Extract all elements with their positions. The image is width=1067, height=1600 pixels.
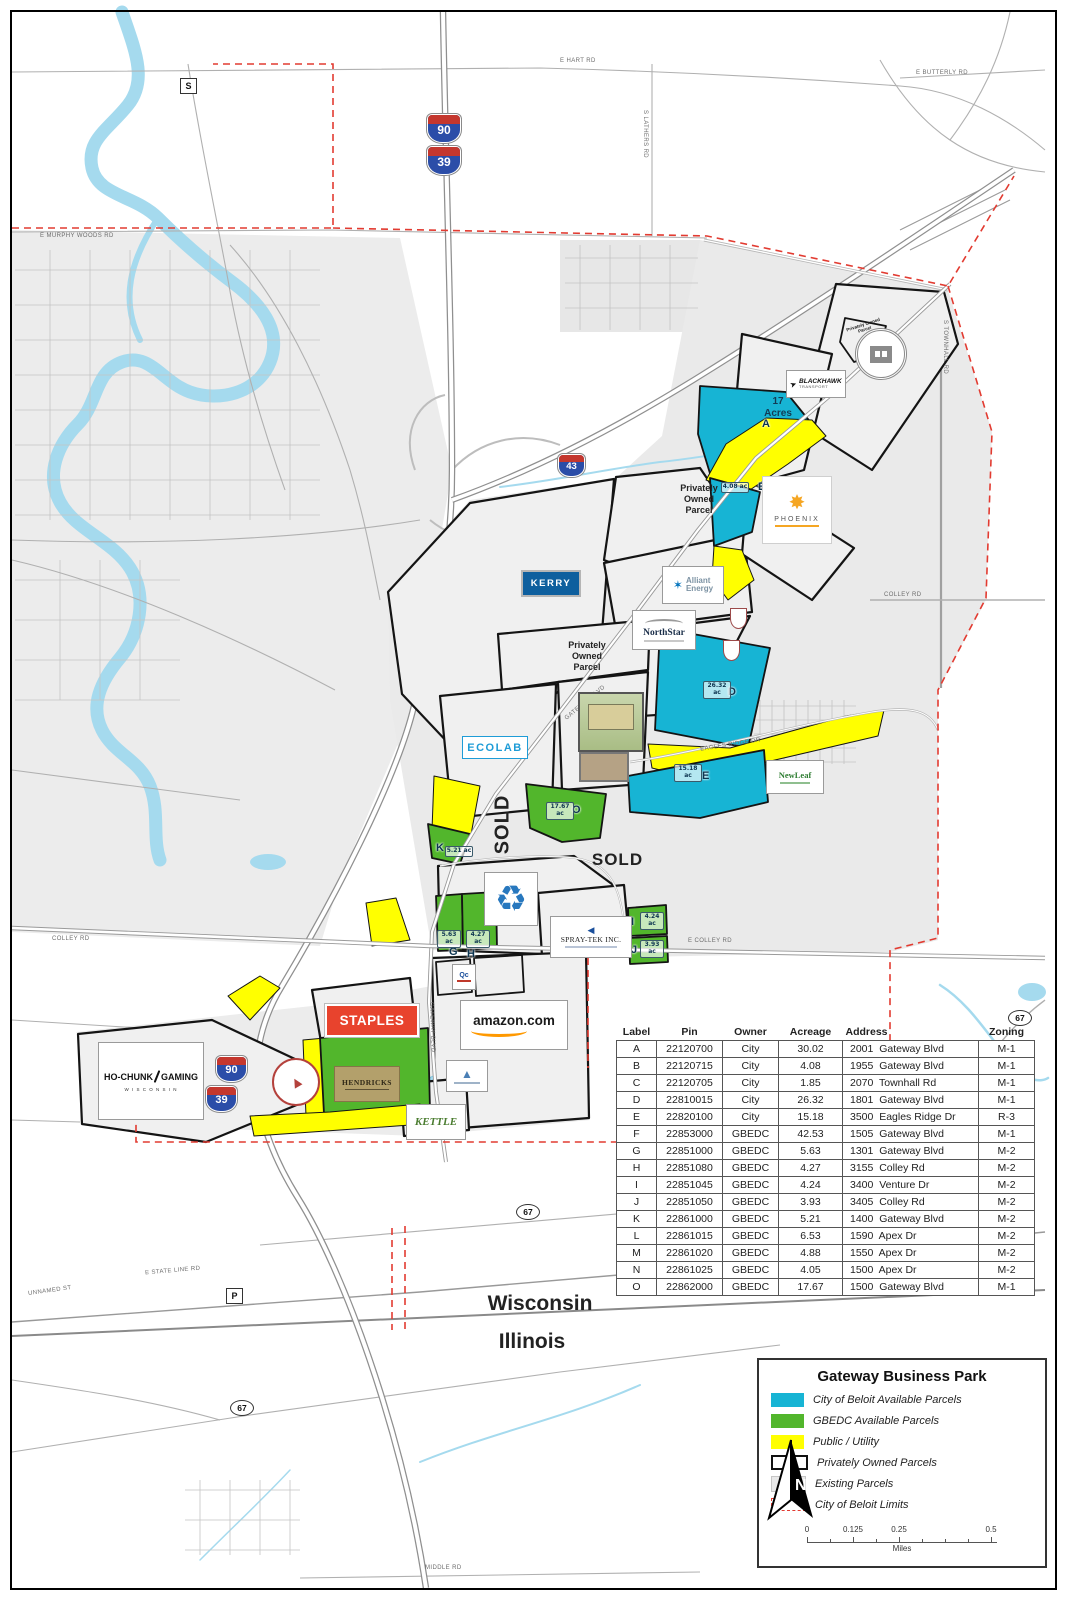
small-company-logo: Qc <box>452 964 476 990</box>
cell-acreage: 5.63 <box>779 1143 843 1160</box>
acreage-chip-h: 4.27 ac <box>466 930 490 948</box>
cell-label: O <box>617 1279 657 1296</box>
cell-label: F <box>617 1126 657 1143</box>
interstate-39-shield-top: 39 <box>427 146 461 175</box>
table-row: I 22851045 GBEDC 4.24 3400 Venture Dr M-… <box>617 1177 1035 1194</box>
cell-zoning: M-1 <box>979 1279 1035 1296</box>
cell-owner: City <box>723 1041 779 1058</box>
cell-acreage: 17.67 <box>779 1279 843 1296</box>
cell-acreage: 6.53 <box>779 1228 843 1245</box>
cell-label: H <box>617 1160 657 1177</box>
cell-pin: 22810015 <box>657 1092 723 1109</box>
interstate-43-shield: 43 <box>558 454 585 477</box>
spraytek-mark-icon: ◀ <box>588 926 595 935</box>
table-row: K 22861000 GBEDC 5.21 1400 Gateway Blvd … <box>617 1211 1035 1228</box>
acreage-chip-b: 4.08 ac <box>721 482 749 493</box>
recycling-company-logo: ♻ <box>484 872 538 926</box>
parcel-letter-h: H <box>467 948 475 960</box>
cell-address: 2070 Townhall Rd <box>843 1075 979 1092</box>
label-illinois: Illinois <box>457 1330 607 1354</box>
cell-owner: City <box>723 1058 779 1075</box>
col-acreage: Acreage <box>779 1024 843 1041</box>
city-parcel-swatch <box>771 1393 804 1407</box>
cell-address: 2001 Gateway Blvd <box>843 1041 979 1058</box>
hochunk-gaming-logo: HO-CHUNK GAMING W I S C O N S I N <box>98 1042 204 1120</box>
spraytek-logo: ◀ SPRAY-TEK INC. <box>550 916 632 958</box>
cell-acreage: 30.02 <box>779 1041 843 1058</box>
parcel-table-header-row: Label Pin Owner Acreage Address Zoning <box>617 1024 1035 1041</box>
table-row: H 22851080 GBEDC 4.27 3155 Colley Rd M-2 <box>617 1160 1035 1177</box>
map-legend: Gateway Business Park City of Beloit Ava… <box>757 1358 1047 1568</box>
cell-address: 1500 Gateway Blvd <box>843 1279 979 1296</box>
table-row: L 22861015 GBEDC 6.53 1590 Apex Dr M-2 <box>617 1228 1035 1245</box>
table-row: C 22120705 City 1.85 2070 Townhall Rd M-… <box>617 1075 1035 1092</box>
abstract-mark-icon <box>870 346 892 363</box>
cell-zoning: R-3 <box>979 1109 1035 1126</box>
cell-pin: 22861025 <box>657 1262 723 1279</box>
road-label-e-colley-rd: E COLLEY RD <box>688 938 732 944</box>
cell-acreage: 4.08 <box>779 1058 843 1075</box>
cell-label: A <box>617 1041 657 1058</box>
cell-pin: 22853000 <box>657 1126 723 1143</box>
crest-logo-1 <box>730 608 747 629</box>
cell-address: 1801 Gateway Blvd <box>843 1092 979 1109</box>
crest-logo-2 <box>723 640 740 661</box>
cell-label: G <box>617 1143 657 1160</box>
cell-zoning: M-2 <box>979 1143 1035 1160</box>
cell-pin: 22851080 <box>657 1160 723 1177</box>
legend-item-label: Existing Parcels <box>815 1478 893 1490</box>
recycle-icon: ♻ <box>495 881 527 917</box>
cell-acreage: 4.24 <box>779 1177 843 1194</box>
gbedc-parcel-swatch <box>771 1414 804 1428</box>
acreage-chip-k: 5.21 ac <box>445 846 473 857</box>
cell-acreage: 5.21 <box>779 1211 843 1228</box>
acreage-chip-e: 15.18 ac <box>674 764 702 782</box>
acreage-chip-j: 3.93 ac <box>640 940 664 958</box>
county-p-badge: P <box>226 1288 243 1304</box>
cell-owner: City <box>723 1075 779 1092</box>
cell-label: M <box>617 1245 657 1262</box>
col-address: Address <box>843 1024 979 1041</box>
cell-zoning: M-2 <box>979 1228 1035 1245</box>
label-privately-owned-2: Privately Owned Parcel <box>558 640 616 672</box>
cell-owner: GBEDC <box>723 1262 779 1279</box>
cell-owner: GBEDC <box>723 1126 779 1143</box>
scale-bar: 0 0.125 0.25 0.5 Miles <box>807 1536 997 1553</box>
wisdot-logo: ▲ <box>272 1058 320 1106</box>
cell-address: 3400 Venture Dr <box>843 1177 979 1194</box>
table-row: N 22861025 GBEDC 4.05 1500 Apex Dr M-2 <box>617 1262 1035 1279</box>
cell-acreage: 1.85 <box>779 1075 843 1092</box>
cell-label: L <box>617 1228 657 1245</box>
cell-owner: GBEDC <box>723 1160 779 1177</box>
cell-label: N <box>617 1262 657 1279</box>
hawk-icon: ➤ <box>789 379 798 390</box>
acreage-chip-o: 17.67 ac <box>546 802 574 820</box>
label-sold-horizontal: SOLD <box>580 850 655 870</box>
park-sign-photo <box>578 692 644 752</box>
cell-label: K <box>617 1211 657 1228</box>
newleaf-logo: NewLeaf <box>766 760 824 794</box>
hendricks-logo: HENDRICKS <box>334 1066 400 1102</box>
col-pin: Pin <box>657 1024 723 1041</box>
blackhawk-logo: ➤ BLACKHAWK TRANSPORT <box>786 370 846 398</box>
cell-acreage: 3.93 <box>779 1194 843 1211</box>
cell-acreage: 42.53 <box>779 1126 843 1143</box>
cell-owner: GBEDC <box>723 1177 779 1194</box>
cell-address: 1590 Apex Dr <box>843 1228 979 1245</box>
cell-acreage: 26.32 <box>779 1092 843 1109</box>
cell-zoning: M-2 <box>979 1194 1035 1211</box>
cell-owner: City <box>723 1092 779 1109</box>
cell-zoning: M-1 <box>979 1126 1035 1143</box>
road-label-e-hart-rd: E HART RD <box>560 58 596 64</box>
cell-label: C <box>617 1075 657 1092</box>
scale-tick-05: 0.5 <box>985 1525 996 1534</box>
legend-item-label: Privately Owned Parcels <box>817 1457 937 1469</box>
col-zoning: Zoning <box>979 1024 1035 1041</box>
table-row: G 22851000 GBEDC 5.63 1301 Gateway Blvd … <box>617 1143 1035 1160</box>
cell-address: 3155 Colley Rd <box>843 1160 979 1177</box>
cell-pin: 22820100 <box>657 1109 723 1126</box>
road-label-s-townhall-rd: S TOWNHALL RD <box>942 320 948 374</box>
interstate-90-shield-top: 90 <box>427 114 461 143</box>
amazon-logo: amazon.com <box>460 1000 568 1050</box>
road-label-middle-rd: MIDDLE RD <box>425 1565 462 1571</box>
legend-item-label: City of Beloit Limits <box>815 1499 909 1511</box>
interstate-39-shield-bottom: 39 <box>206 1086 237 1112</box>
cell-pin: 22851000 <box>657 1143 723 1160</box>
legend-item-city: City of Beloit Available Parcels <box>771 1391 1045 1408</box>
cell-pin: 22120700 <box>657 1041 723 1058</box>
parcel-table: Label Pin Owner Acreage Address Zoning A… <box>616 1024 1035 1296</box>
legend-item-gbedc: GBEDC Available Parcels <box>771 1412 1045 1429</box>
parcel-letter-a: A <box>762 418 770 430</box>
county-s-badge: S <box>180 78 197 94</box>
cell-pin: 22851050 <box>657 1194 723 1211</box>
label-wisconsin: Wisconsin <box>460 1292 620 1316</box>
acreage-chip-d: 26.32 ac <box>703 681 731 699</box>
amazon-smile-icon <box>471 1025 527 1037</box>
label-17-acres: 17 Acres <box>758 396 798 419</box>
scale-tick-0125: 0.125 <box>843 1525 863 1534</box>
route-67-badge-center: 67 <box>516 1204 540 1220</box>
alliant-star-icon: ✶ <box>673 578 683 592</box>
table-row: F 22853000 GBEDC 42.53 1505 Gateway Blvd… <box>617 1126 1035 1143</box>
cell-zoning: M-2 <box>979 1262 1035 1279</box>
table-row: B 22120715 City 4.08 1955 Gateway Blvd M… <box>617 1058 1035 1075</box>
legend-item-label: GBEDC Available Parcels <box>813 1415 939 1427</box>
scale-unit: Miles <box>807 1544 997 1553</box>
road-label-s-lathers-rd: S LATHERS RD <box>642 110 648 158</box>
cell-pin: 22861020 <box>657 1245 723 1262</box>
cell-acreage: 15.18 <box>779 1109 843 1126</box>
cell-owner: GBEDC <box>723 1245 779 1262</box>
kerry-logo: KERRY <box>521 570 581 597</box>
scale-tick-0: 0 <box>805 1525 809 1534</box>
cell-owner: GBEDC <box>723 1211 779 1228</box>
phoenix-logo: ✸ PHOENIX <box>762 476 832 544</box>
cell-owner: GBEDC <box>723 1194 779 1211</box>
cell-zoning: M-1 <box>979 1041 1035 1058</box>
col-owner: Owner <box>723 1024 779 1041</box>
col-label: Label <box>617 1024 657 1041</box>
cell-acreage: 4.27 <box>779 1160 843 1177</box>
cell-pin: 22862000 <box>657 1279 723 1296</box>
road-label-colley-rd-east: COLLEY RD <box>884 592 922 598</box>
circular-company-logo <box>855 328 907 380</box>
interstate-90-shield-bottom: 90 <box>216 1056 247 1082</box>
cell-pin: 22120705 <box>657 1075 723 1092</box>
road-label-colley-rd-west: COLLEY RD <box>52 936 90 942</box>
cell-zoning: M-2 <box>979 1160 1035 1177</box>
table-row: D 22810015 City 26.32 1801 Gateway Blvd … <box>617 1092 1035 1109</box>
cell-address: 1955 Gateway Blvd <box>843 1058 979 1075</box>
cell-address: 1500 Apex Dr <box>843 1262 979 1279</box>
cell-label: D <box>617 1092 657 1109</box>
table-row: J 22851050 GBEDC 3.93 3405 Colley Rd M-2 <box>617 1194 1035 1211</box>
cell-acreage: 4.88 <box>779 1245 843 1262</box>
cell-zoning: M-2 <box>979 1177 1035 1194</box>
parcel-letter-g: G <box>449 946 458 958</box>
cell-label: B <box>617 1058 657 1075</box>
northstar-logo: NorthStar <box>632 610 696 650</box>
cell-zoning: M-1 <box>979 1075 1035 1092</box>
cell-owner: GBEDC <box>723 1143 779 1160</box>
building-photo <box>579 752 629 782</box>
road-label-e-butterly-rd: E BUTTERLY RD <box>916 70 968 76</box>
cell-pin: 22120715 <box>657 1058 723 1075</box>
label-sold-vertical: SOLD <box>492 785 515 865</box>
cell-pin: 22861000 <box>657 1211 723 1228</box>
cell-address: 3500 Eagles Ridge Dr <box>843 1109 979 1126</box>
triangle-icon: ▲ <box>461 1068 473 1080</box>
north-arrow-icon: N <box>759 1438 823 1522</box>
table-row: O 22862000 GBEDC 17.67 1500 Gateway Blvd… <box>617 1279 1035 1296</box>
cell-label: I <box>617 1177 657 1194</box>
ecolab-logo: ECOLAB <box>462 736 528 759</box>
cell-zoning: M-1 <box>979 1058 1035 1075</box>
cell-address: 1550 Apex Dr <box>843 1245 979 1262</box>
cell-acreage: 4.05 <box>779 1262 843 1279</box>
staples-logo: STAPLES <box>325 1004 419 1037</box>
svg-text:N: N <box>795 1477 807 1494</box>
cell-pin: 22861015 <box>657 1228 723 1245</box>
cell-label: J <box>617 1194 657 1211</box>
parcel-small-2 <box>474 955 524 996</box>
map-page: E HART RD E BUTTERLY RD E MURPHY WOODS R… <box>0 0 1067 1600</box>
acreage-chip-g: 5.63 ac <box>437 930 461 948</box>
alliant-energy-logo: ✶ AlliantEnergy <box>662 566 724 604</box>
cell-zoning: M-2 <box>979 1211 1035 1228</box>
kettle-logo: KETTLE <box>406 1104 466 1140</box>
parcel-letter-k: K <box>436 842 444 854</box>
legend-title: Gateway Business Park <box>759 1368 1045 1385</box>
route-67-badge-south: 67 <box>230 1400 254 1416</box>
cell-address: 1301 Gateway Blvd <box>843 1143 979 1160</box>
legend-item-label: City of Beloit Available Parcels <box>813 1394 962 1406</box>
cell-owner: GBEDC <box>723 1228 779 1245</box>
scale-tick-025: 0.25 <box>891 1525 907 1534</box>
wisdot-triangle-icon: ▲ <box>285 1071 306 1093</box>
cell-address: 3405 Colley Rd <box>843 1194 979 1211</box>
road-label-e-murphy-woods-rd: E MURPHY WOODS RD <box>40 233 114 239</box>
acreage-chip-i: 4.24 ac <box>640 912 664 930</box>
feather-icon <box>154 1070 161 1083</box>
northstar-swoosh-icon <box>645 619 683 628</box>
cell-zoning: M-2 <box>979 1245 1035 1262</box>
triangle-company-logo: ▲ <box>446 1060 488 1092</box>
label-privately-owned-1: Privately Owned Parcel <box>670 483 728 515</box>
cell-label: E <box>617 1109 657 1126</box>
public-utility-g <box>366 898 410 946</box>
cell-address: 1400 Gateway Blvd <box>843 1211 979 1228</box>
table-row: E 22820100 City 15.18 3500 Eagles Ridge … <box>617 1109 1035 1126</box>
cell-owner: GBEDC <box>723 1279 779 1296</box>
cell-zoning: M-1 <box>979 1092 1035 1109</box>
phoenix-flame-icon: ✸ <box>789 493 806 513</box>
parcel-letter-e: E <box>702 770 709 782</box>
cell-owner: City <box>723 1109 779 1126</box>
table-row: M 22861020 GBEDC 4.88 1550 Apex Dr M-2 <box>617 1245 1035 1262</box>
sign-face <box>588 704 634 730</box>
cell-pin: 22851045 <box>657 1177 723 1194</box>
table-row: A 22120700 City 30.02 2001 Gateway Blvd … <box>617 1041 1035 1058</box>
cell-address: 1505 Gateway Blvd <box>843 1126 979 1143</box>
